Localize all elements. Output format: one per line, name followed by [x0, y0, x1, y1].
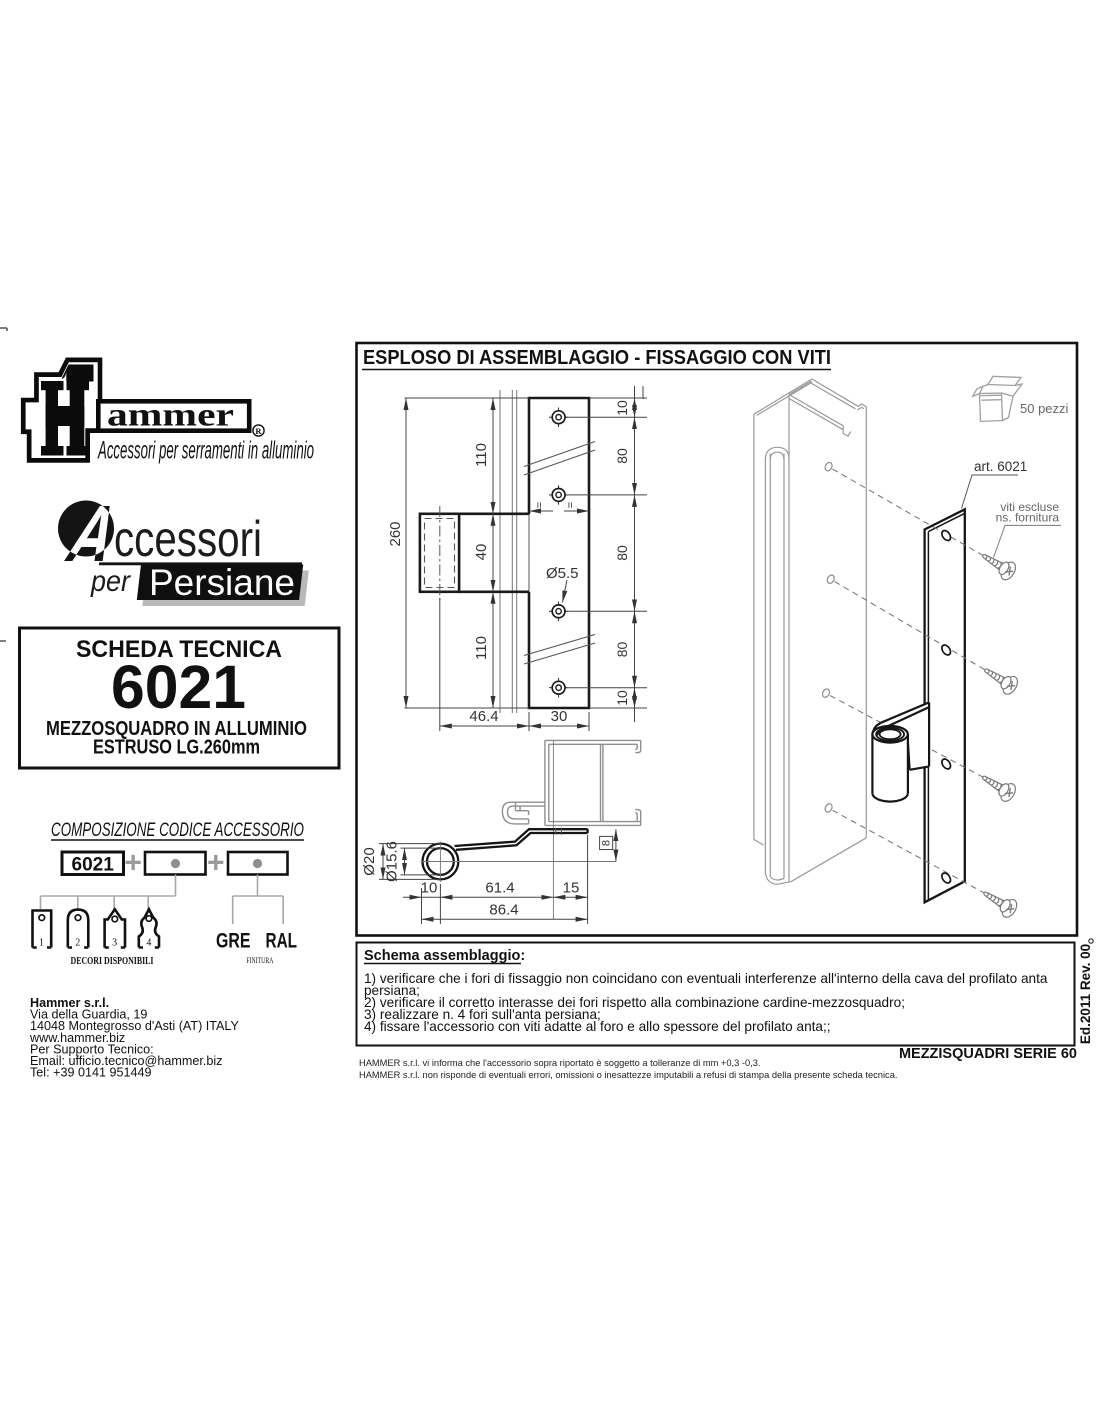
svg-text:1) verificare che i fori di fi: 1) verificare che i fori di fissaggio no…: [364, 971, 1048, 986]
svg-text:Ø15.6: Ø15.6: [384, 841, 401, 882]
svg-text:FINITURA: FINITURA: [246, 955, 274, 965]
svg-text:R: R: [255, 426, 262, 436]
svg-text:=: =: [534, 502, 546, 508]
svg-text:86.4: 86.4: [489, 902, 518, 919]
svg-text:GRE: GRE: [216, 930, 251, 953]
svg-text:Persiane: Persiane: [149, 562, 295, 603]
svg-text:46.4: 46.4: [469, 708, 498, 725]
svg-text:=: =: [565, 502, 577, 508]
svg-text:80: 80: [614, 642, 630, 658]
svg-text:6021: 6021: [72, 855, 115, 876]
svg-text:ccessori: ccessori: [114, 511, 262, 567]
svg-text:6021: 6021: [111, 653, 246, 721]
svg-text:8: 8: [601, 840, 613, 846]
svg-text:per: per: [90, 565, 131, 598]
svg-text:80: 80: [614, 448, 630, 464]
svg-text:4) fissare l'accessorio con vi: 4) fissare l'accessorio con viti adatte …: [364, 1019, 831, 1034]
svg-text:10: 10: [614, 690, 630, 706]
svg-text:260: 260: [387, 521, 404, 546]
svg-text:ESTRUSO LG.260mm: ESTRUSO LG.260mm: [93, 736, 260, 759]
svg-text:art. 6021: art. 6021: [974, 459, 1027, 474]
svg-text:15: 15: [563, 880, 580, 897]
svg-text:110: 110: [473, 443, 490, 467]
svg-text:Accessori per serramenti in al: Accessori per serramenti in alluminio: [97, 437, 314, 465]
svg-text:61.4: 61.4: [485, 880, 514, 897]
svg-text:DECORI DISPONIBILI: DECORI DISPONIBILI: [71, 955, 154, 967]
svg-text:Ø5.5: Ø5.5: [546, 565, 579, 582]
svg-text:RAL: RAL: [266, 930, 298, 953]
svg-text:ammer: ammer: [107, 398, 234, 434]
svg-text:Tel: +39 0141 951449: Tel: +39 0141 951449: [30, 1066, 152, 1080]
svg-text:80: 80: [614, 545, 630, 561]
svg-text:HAMMER s.r.l. non risponde di: HAMMER s.r.l. non risponde di eventuali …: [359, 1070, 897, 1080]
svg-text:COMPOSIZIONE CODICE ACCESSORIO: COMPOSIZIONE CODICE ACCESSORIO: [51, 819, 304, 841]
svg-text:10: 10: [614, 400, 630, 416]
svg-text:30: 30: [551, 708, 568, 725]
svg-text:2: 2: [75, 938, 80, 949]
svg-text:Schema assemblaggio:: Schema assemblaggio:: [364, 948, 525, 964]
svg-text:10: 10: [421, 880, 438, 897]
svg-text:ESPLOSO DI ASSEMBLAGGIO - FISS: ESPLOSO DI ASSEMBLAGGIO - FISSAGGIO CON …: [363, 346, 831, 369]
svg-text:+: +: [124, 847, 142, 880]
svg-text:HAMMER s.r.l. vi informa che l: HAMMER s.r.l. vi informa che l'accessori…: [359, 1058, 760, 1068]
svg-text:50 pezzi: 50 pezzi: [1020, 401, 1069, 416]
svg-text:40: 40: [473, 544, 490, 561]
svg-text:110: 110: [473, 636, 490, 660]
svg-text:Ed.2011 Rev. 00: Ed.2011 Rev. 00: [1078, 944, 1093, 1044]
svg-text:Ø20: Ø20: [361, 847, 378, 875]
svg-text:4: 4: [146, 938, 151, 949]
svg-text:1: 1: [39, 938, 44, 949]
svg-text:3: 3: [112, 938, 117, 949]
svg-text:MEZZISQUADRI SERIE 60: MEZZISQUADRI SERIE 60: [899, 1046, 1077, 1062]
svg-text:+: +: [207, 847, 225, 880]
svg-text:ns. fornitura: ns. fornitura: [996, 511, 1060, 525]
